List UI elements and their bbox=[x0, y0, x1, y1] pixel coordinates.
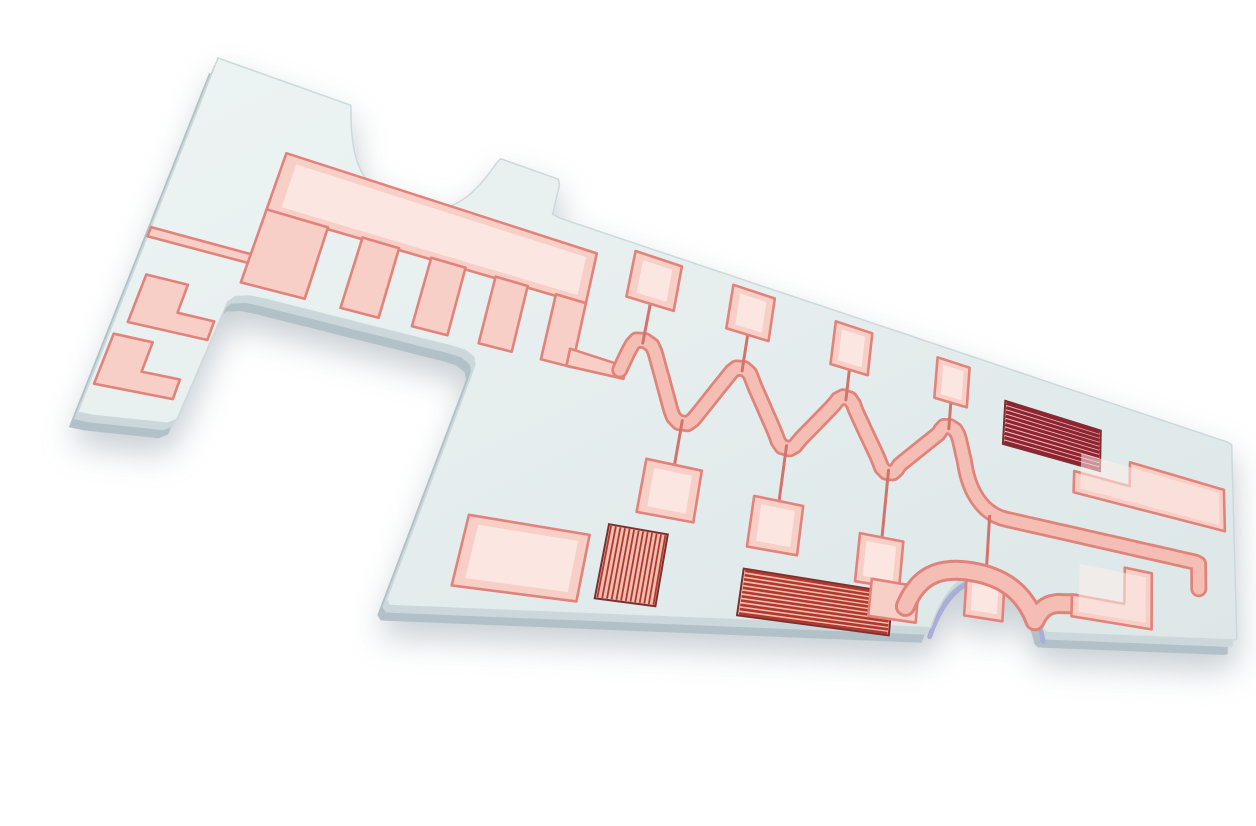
circuit-board-photo bbox=[40, 16, 1256, 810]
square-pad-bottom-3-sheen bbox=[863, 541, 896, 581]
board-shadow-wrap bbox=[40, 16, 1256, 810]
stub-top-4 bbox=[949, 403, 951, 429]
square-pad-bottom-1-sheen bbox=[647, 468, 692, 514]
board-svg bbox=[40, 16, 1256, 810]
square-pad-bottom-2-sheen bbox=[756, 504, 795, 547]
resistor-vertical bbox=[595, 524, 668, 606]
